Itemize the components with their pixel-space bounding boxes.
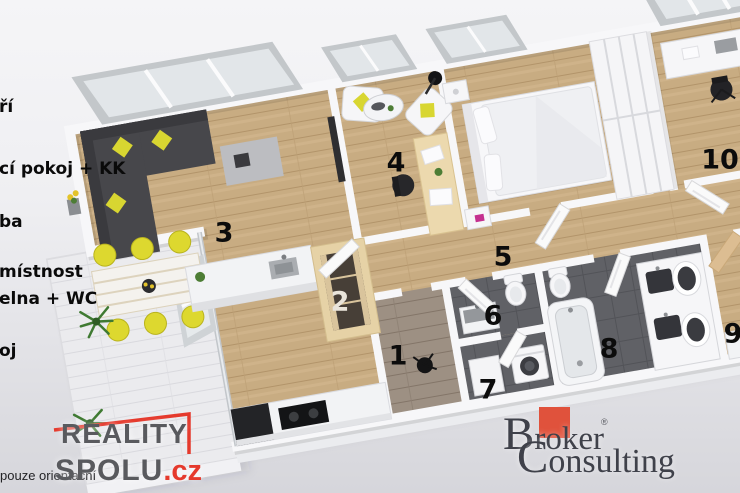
reality-spolu-word1: REALITY	[61, 420, 188, 448]
registered-mark: ®	[601, 417, 608, 427]
legend-item-obyvaci-pokoj: cí pokoj + KK	[0, 159, 125, 179]
room-number-9: 9	[724, 321, 740, 348]
legend-item-chodba: ba	[0, 212, 23, 232]
nightstand	[464, 206, 491, 230]
room-number-3: 3	[215, 220, 234, 247]
room-number-10: 10	[701, 147, 739, 174]
legend-item-zadveri: ří	[0, 97, 13, 117]
consulting-word: Consulting	[517, 434, 675, 481]
room-number-2: 2	[331, 289, 350, 316]
legend-item-mistnost: místnost	[0, 262, 83, 282]
legend-item-koupelna-wc: elna + WC	[0, 289, 97, 309]
nightstand	[442, 80, 469, 104]
reality-spolu-tld: .cz	[163, 455, 202, 487]
room-number-6: 6	[484, 303, 503, 330]
room-number-5: 5	[494, 244, 513, 271]
room-number-7: 7	[479, 377, 498, 404]
sink	[653, 314, 682, 340]
pillow	[484, 154, 503, 191]
legend-item-pokoj: oj	[0, 341, 17, 361]
room-number-4: 4	[387, 150, 406, 177]
sink	[645, 268, 674, 294]
reality-spolu-word2: SPOLU	[55, 454, 163, 487]
room-number-1: 1	[389, 343, 408, 370]
room-number-8: 8	[600, 336, 619, 363]
side-table	[233, 153, 250, 168]
